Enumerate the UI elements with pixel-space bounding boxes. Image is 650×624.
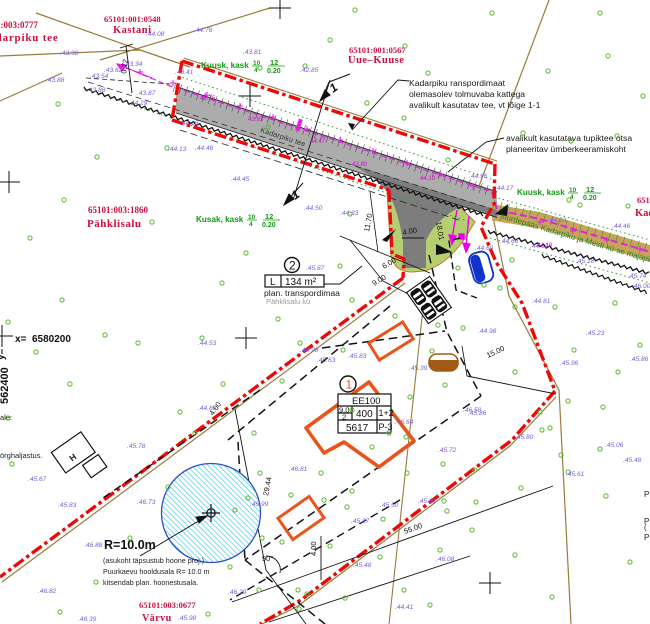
- svg-text:.46.39: .46.39: [78, 616, 97, 623]
- svg-text:.44.46: .44.46: [612, 223, 631, 230]
- svg-text:.44.18: .44.18: [180, 120, 199, 127]
- svg-text:2: 2: [342, 413, 346, 422]
- svg-text:65101:001:0567: 65101:001:0567: [349, 45, 406, 55]
- svg-text:0.20: 0.20: [262, 222, 276, 229]
- svg-text:(: (: [644, 523, 647, 532]
- svg-text:2: 2: [289, 259, 296, 273]
- svg-text:Värvu: Värvu: [142, 613, 172, 624]
- svg-text:65101:003:0677: 65101:003:0677: [139, 600, 196, 610]
- svg-text:43.93: 43.93: [248, 117, 264, 123]
- svg-text:.44.17: .44.17: [495, 185, 514, 192]
- svg-text:.44.41: .44.41: [395, 604, 414, 611]
- svg-text:.45.48: .45.48: [353, 562, 372, 569]
- svg-text:örghaljastus.: örghaljastus.: [0, 451, 43, 460]
- svg-text:43.80: 43.80: [352, 162, 368, 168]
- svg-text:.43.87: .43.87: [137, 90, 156, 97]
- svg-text:.44.76: .44.76: [194, 27, 213, 34]
- svg-text:.44.69: .44.69: [475, 245, 494, 252]
- svg-text:4: 4: [249, 221, 253, 228]
- svg-text:.45.98: .45.98: [178, 615, 197, 622]
- svg-text:.45.67: .45.67: [28, 476, 47, 483]
- svg-text:65101:003:0777: 65101:003:0777: [0, 20, 38, 30]
- svg-text:.45.61: .45.61: [566, 471, 585, 478]
- svg-text:olemasolev tolmuvaba kattega: olemasolev tolmuvaba kattega: [409, 89, 525, 99]
- svg-text:.44.96: .44.96: [469, 173, 488, 180]
- svg-text:.44.98: .44.98: [478, 328, 497, 335]
- svg-text:0.20: 0.20: [583, 195, 597, 202]
- svg-text:(asukoht täpsustub hoone proj.: (asukoht täpsustub hoone proj.): [103, 556, 204, 565]
- svg-text:.45.83: .45.83: [58, 502, 77, 509]
- svg-text:.44.53: .44.53: [198, 340, 217, 347]
- svg-text:.43.34: .43.34: [124, 61, 143, 68]
- svg-text:.44.53: .44.53: [548, 217, 567, 224]
- svg-text:Kusak, kask: Kusak, kask: [196, 215, 244, 224]
- svg-text:.46.81: .46.81: [289, 466, 308, 473]
- svg-text:Kuusk, kask: Kuusk, kask: [517, 188, 565, 197]
- svg-text:y=: y=: [0, 348, 7, 360]
- svg-text:.43.54: .43.54: [90, 73, 109, 80]
- svg-text:562400: 562400: [0, 367, 11, 404]
- svg-text:4.00: 4.00: [309, 541, 318, 556]
- svg-text:44.10: 44.10: [420, 176, 436, 182]
- svg-text:EE100: EE100: [352, 396, 381, 407]
- svg-text:.46.29: .46.29: [228, 589, 247, 596]
- svg-text:.46.88: .46.88: [84, 542, 103, 549]
- svg-text:Pähklisalu: Pähklisalu: [87, 218, 142, 230]
- svg-text:.44.86: .44.86: [198, 405, 217, 412]
- svg-text:.45.18: .45.18: [576, 258, 595, 265]
- svg-text:avalikult kasutatav tee, vt lõ: avalikult kasutatav tee, vt lõige 1-1: [409, 100, 541, 110]
- svg-text:.44.08: .44.08: [146, 31, 165, 38]
- svg-text:1+2: 1+2: [379, 408, 394, 418]
- svg-text:65101:003:1860: 65101:003:1860: [88, 205, 148, 215]
- svg-text:90°: 90°: [262, 554, 273, 563]
- svg-text:.45.87: .45.87: [306, 265, 325, 272]
- svg-text:44.47: 44.47: [310, 139, 326, 145]
- svg-text:.45.48: .45.48: [623, 457, 642, 464]
- svg-text:.43.98: .43.98: [60, 50, 79, 57]
- svg-text:.46.64: .46.64: [395, 419, 414, 426]
- svg-text:.45.39: .45.39: [409, 365, 428, 372]
- svg-text:x= 6580200: x= 6580200: [15, 334, 71, 345]
- svg-text:.45.50: .45.50: [380, 502, 399, 509]
- svg-text:400: 400: [356, 409, 373, 420]
- svg-text:.45.83: .45.83: [348, 353, 367, 360]
- svg-text:.45.86: .45.86: [468, 410, 487, 417]
- svg-text:5617: 5617: [346, 423, 369, 434]
- svg-text:.43.62: .43.62: [104, 67, 123, 74]
- svg-text:.45.86: .45.86: [630, 356, 649, 363]
- svg-text:.44.81: .44.81: [532, 298, 551, 305]
- svg-text:Kadarpiku ranspordimaat: Kadarpiku ranspordimaat: [409, 78, 506, 88]
- svg-text:43.75: 43.75: [200, 96, 216, 102]
- svg-text:.44.13: .44.13: [168, 146, 187, 153]
- svg-text:P: P: [644, 490, 649, 499]
- svg-text:.44.33: .44.33: [340, 210, 359, 217]
- svg-text:134 m²: 134 m²: [285, 277, 317, 288]
- svg-text:.42.85: .42.85: [300, 67, 319, 74]
- svg-text:.45.72: .45.72: [438, 447, 457, 454]
- svg-text:Pähklisalu kü: Pähklisalu kü: [266, 297, 310, 306]
- svg-text:.45.81: .45.81: [418, 498, 437, 505]
- svg-text:.46.73: .46.73: [137, 499, 156, 506]
- svg-text:Uue–Kuuse: Uue–Kuuse: [348, 55, 404, 66]
- svg-text:.44.45: .44.45: [231, 176, 250, 183]
- svg-text:.45.80: .45.80: [515, 434, 534, 441]
- svg-text:44.18: 44.18: [537, 243, 553, 249]
- svg-text:.44.50: .44.50: [304, 205, 323, 212]
- svg-text:.44.29: .44.29: [129, 100, 148, 107]
- svg-text:.46.82: .46.82: [38, 588, 57, 595]
- svg-text:.44.98: .44.98: [300, 347, 319, 354]
- svg-text:Kuusk, kask: Kuusk, kask: [201, 61, 249, 70]
- svg-text:P-3: P-3: [379, 422, 393, 432]
- svg-text:1: 1: [346, 378, 353, 392]
- svg-text:.45.27: .45.27: [351, 518, 370, 525]
- svg-text:.45.74: .45.74: [628, 273, 647, 280]
- svg-text:Kadar: Kadar: [635, 208, 650, 219]
- svg-text:P: P: [644, 533, 649, 542]
- svg-text:.45.23: .45.23: [586, 330, 605, 337]
- svg-text:0.20: 0.20: [267, 68, 281, 75]
- svg-text:.45.99: .45.99: [250, 501, 269, 508]
- svg-text:planeeritav ümberkeeramiskoht: planeeritav ümberkeeramiskoht: [506, 144, 627, 154]
- svg-text:Puurkaevu hooldusala R= 10.0 m: Puurkaevu hooldusala R= 10.0 m: [103, 567, 209, 576]
- svg-text:.45.78: .45.78: [127, 443, 146, 450]
- svg-text:.43.41: .43.41: [175, 69, 194, 76]
- svg-text:.45.96: .45.96: [560, 360, 579, 367]
- svg-text:65101:001:0548: 65101:001:0548: [104, 14, 161, 24]
- svg-text:.43.88: .43.88: [87, 87, 106, 94]
- svg-text:kitsendab plan. hoonestusala.: kitsendab plan. hoonestusala.: [103, 578, 198, 587]
- svg-text:.45.63: .45.63: [317, 357, 336, 364]
- svg-text:.43.88: .43.88: [46, 77, 65, 84]
- svg-text:.44.66: .44.66: [500, 238, 519, 245]
- svg-text:Kadarpiku tee: Kadarpiku tee: [0, 32, 59, 44]
- svg-text:.45.06: .45.06: [605, 442, 624, 449]
- svg-text:.44.46: .44.46: [195, 145, 214, 152]
- svg-text:4: 4: [254, 67, 258, 74]
- svg-text:.46.00: .46.00: [632, 283, 650, 290]
- svg-text:.43.81: .43.81: [243, 49, 262, 56]
- svg-text:L: L: [270, 277, 276, 288]
- svg-text:65101:0: 65101:0: [637, 195, 650, 205]
- svg-text:.46.08: .46.08: [436, 556, 455, 563]
